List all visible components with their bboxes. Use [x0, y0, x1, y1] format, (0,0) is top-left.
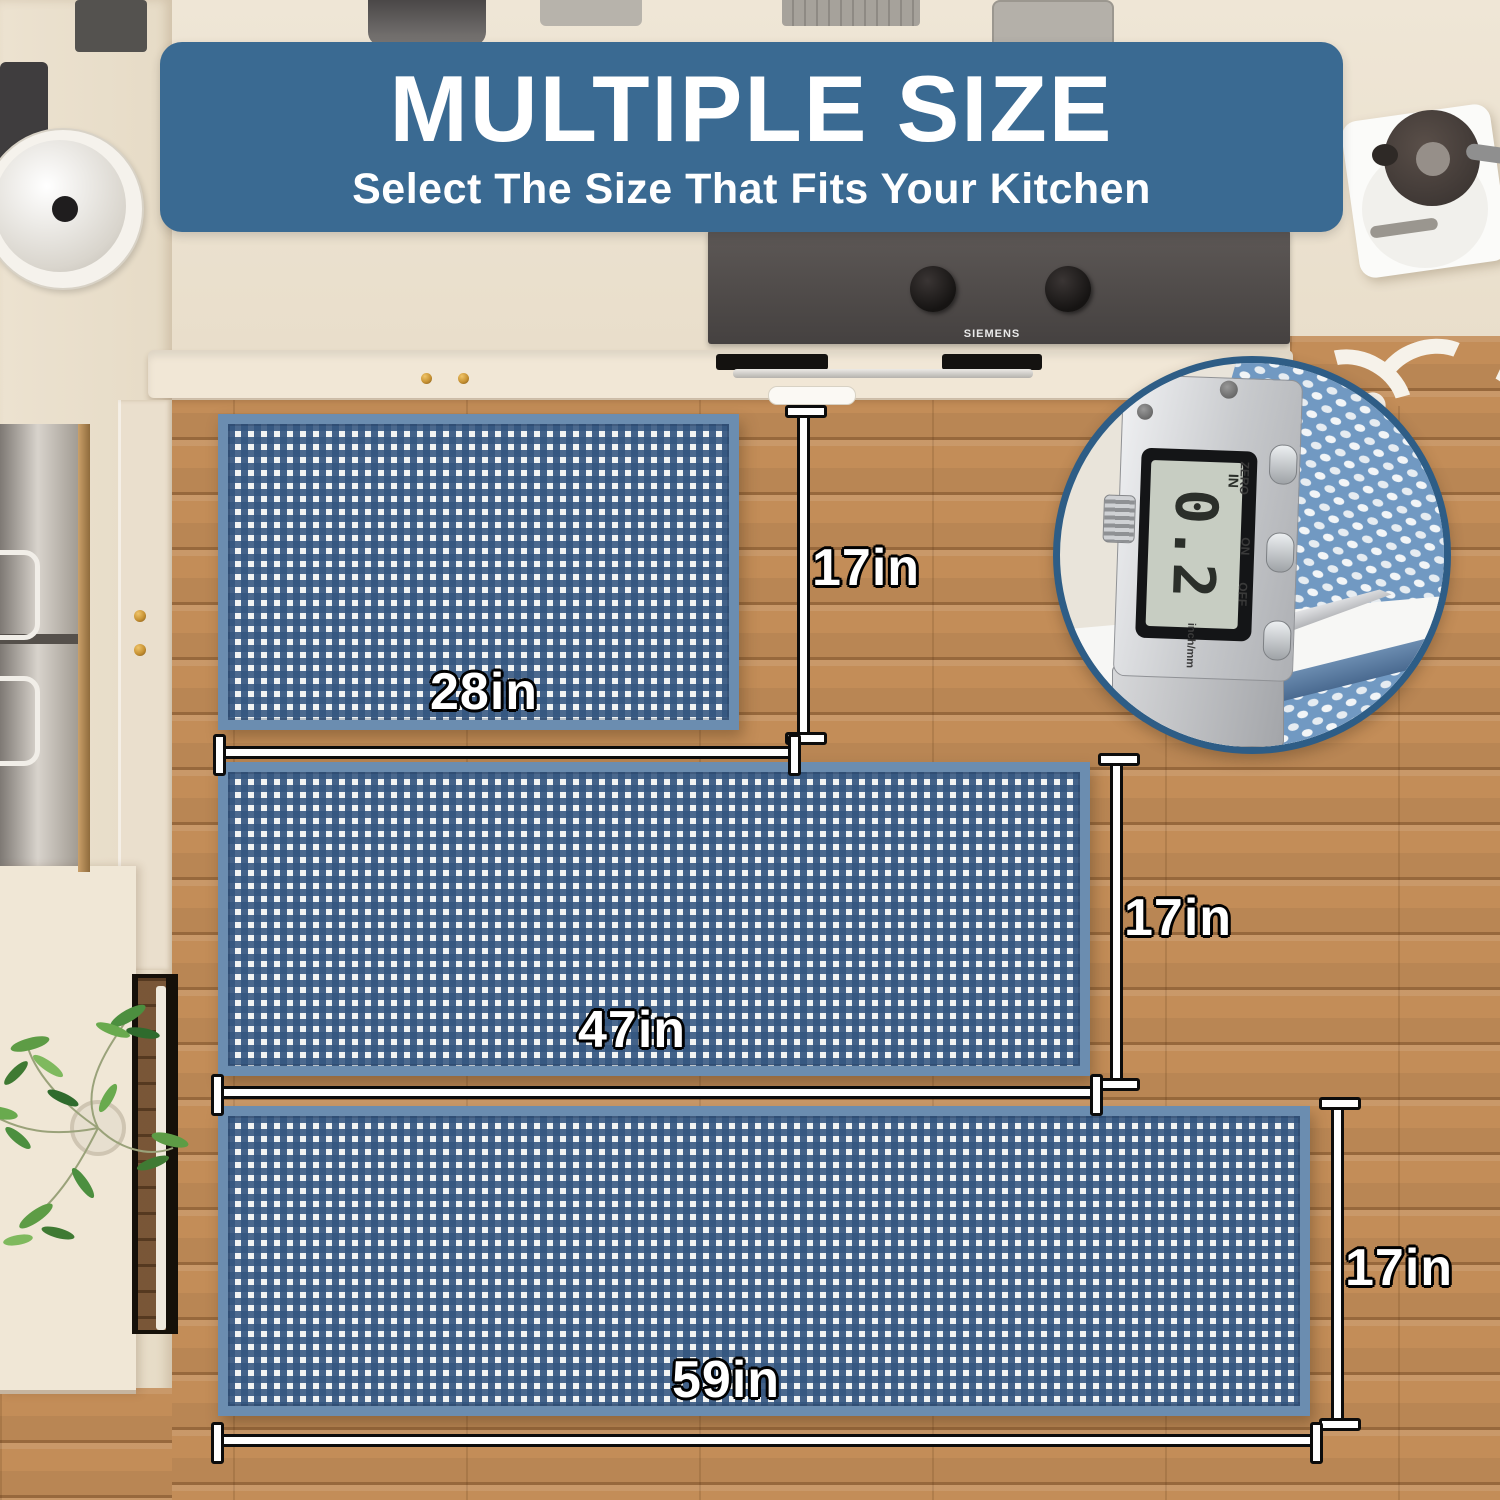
caliper-on-label: ON — [1238, 537, 1253, 555]
kitchen-photo-background: SIEMENS — [0, 0, 1500, 1500]
caliper-reading: 0.2 — [1159, 488, 1231, 601]
caliper-thumbwheel — [1102, 494, 1136, 543]
dim-line-medium-height — [1110, 760, 1123, 1084]
potted-plant — [0, 978, 193, 1273]
dim-label-medium-height: 17in — [1124, 888, 1232, 948]
iron-appliance — [368, 0, 486, 46]
metal-grate — [782, 0, 920, 26]
appliance-frame — [78, 424, 90, 872]
caliper-body: 0.2 IN ZERO ON OFF inch/mm — [1113, 374, 1303, 682]
caliper-mode-label: inch/mm — [1183, 623, 1197, 669]
headline-banner: MULTIPLE SIZE Select The Size That Fits … — [160, 42, 1343, 232]
caliper-zero-label: ZERO — [1237, 461, 1252, 495]
food-processor-lid-center — [1416, 142, 1450, 176]
caliper-lcd-screen: 0.2 IN — [1146, 460, 1244, 629]
drawer-rail — [733, 369, 1033, 378]
thickness-measurement-inset: 0.2 IN ZERO ON OFF inch/mm — [1053, 356, 1451, 754]
appliance-handle — [0, 550, 40, 640]
caliper-off-label: OFF — [1235, 582, 1250, 606]
dim-label-large-height: 17in — [1345, 1238, 1453, 1298]
dim-line-large-width — [218, 1434, 1316, 1447]
appliance-handle — [0, 676, 40, 766]
cabinet-knob — [134, 610, 146, 622]
caliper-mode-button — [1262, 620, 1291, 661]
caliper-screw — [1220, 380, 1239, 399]
cooktop-brand-label: SIEMENS — [942, 328, 1042, 340]
banner-title: MULTIPLE SIZE — [389, 60, 1113, 159]
kettle-knob — [52, 196, 78, 222]
caliper-zero-button — [1269, 444, 1298, 485]
dim-label-small-height: 17in — [812, 538, 920, 598]
cabinet-knob — [421, 373, 432, 384]
caliper-screw — [1137, 403, 1154, 420]
dim-label-large-width: 59in — [672, 1350, 780, 1410]
gray-pad — [540, 0, 642, 26]
dim-label-small-width: 28in — [430, 662, 538, 722]
cooktop-knob-right — [1045, 266, 1091, 312]
dim-label-medium-width: 47in — [578, 1000, 686, 1060]
stainless-appliance — [0, 424, 84, 872]
cabinet-vent-slot — [716, 354, 828, 370]
cooktop-knob-left — [910, 266, 956, 312]
cabinet-knob — [134, 644, 146, 656]
drawer-handle — [768, 386, 856, 405]
cabinet-vent-slot — [942, 354, 1042, 370]
dim-line-large-height — [1331, 1104, 1344, 1424]
shelf-object — [75, 0, 147, 52]
caliper-on-off-button — [1265, 532, 1294, 573]
dim-line-small-height — [797, 412, 810, 738]
cabinet-knob — [458, 373, 469, 384]
dim-line-small-width — [220, 746, 794, 759]
wood-floor-bottom-left — [0, 1388, 172, 1500]
cooktop — [708, 230, 1290, 344]
banner-subtitle: Select The Size That Fits Your Kitchen — [352, 165, 1151, 214]
dim-line-medium-width — [218, 1086, 1096, 1099]
food-processor-spout — [1372, 144, 1398, 166]
